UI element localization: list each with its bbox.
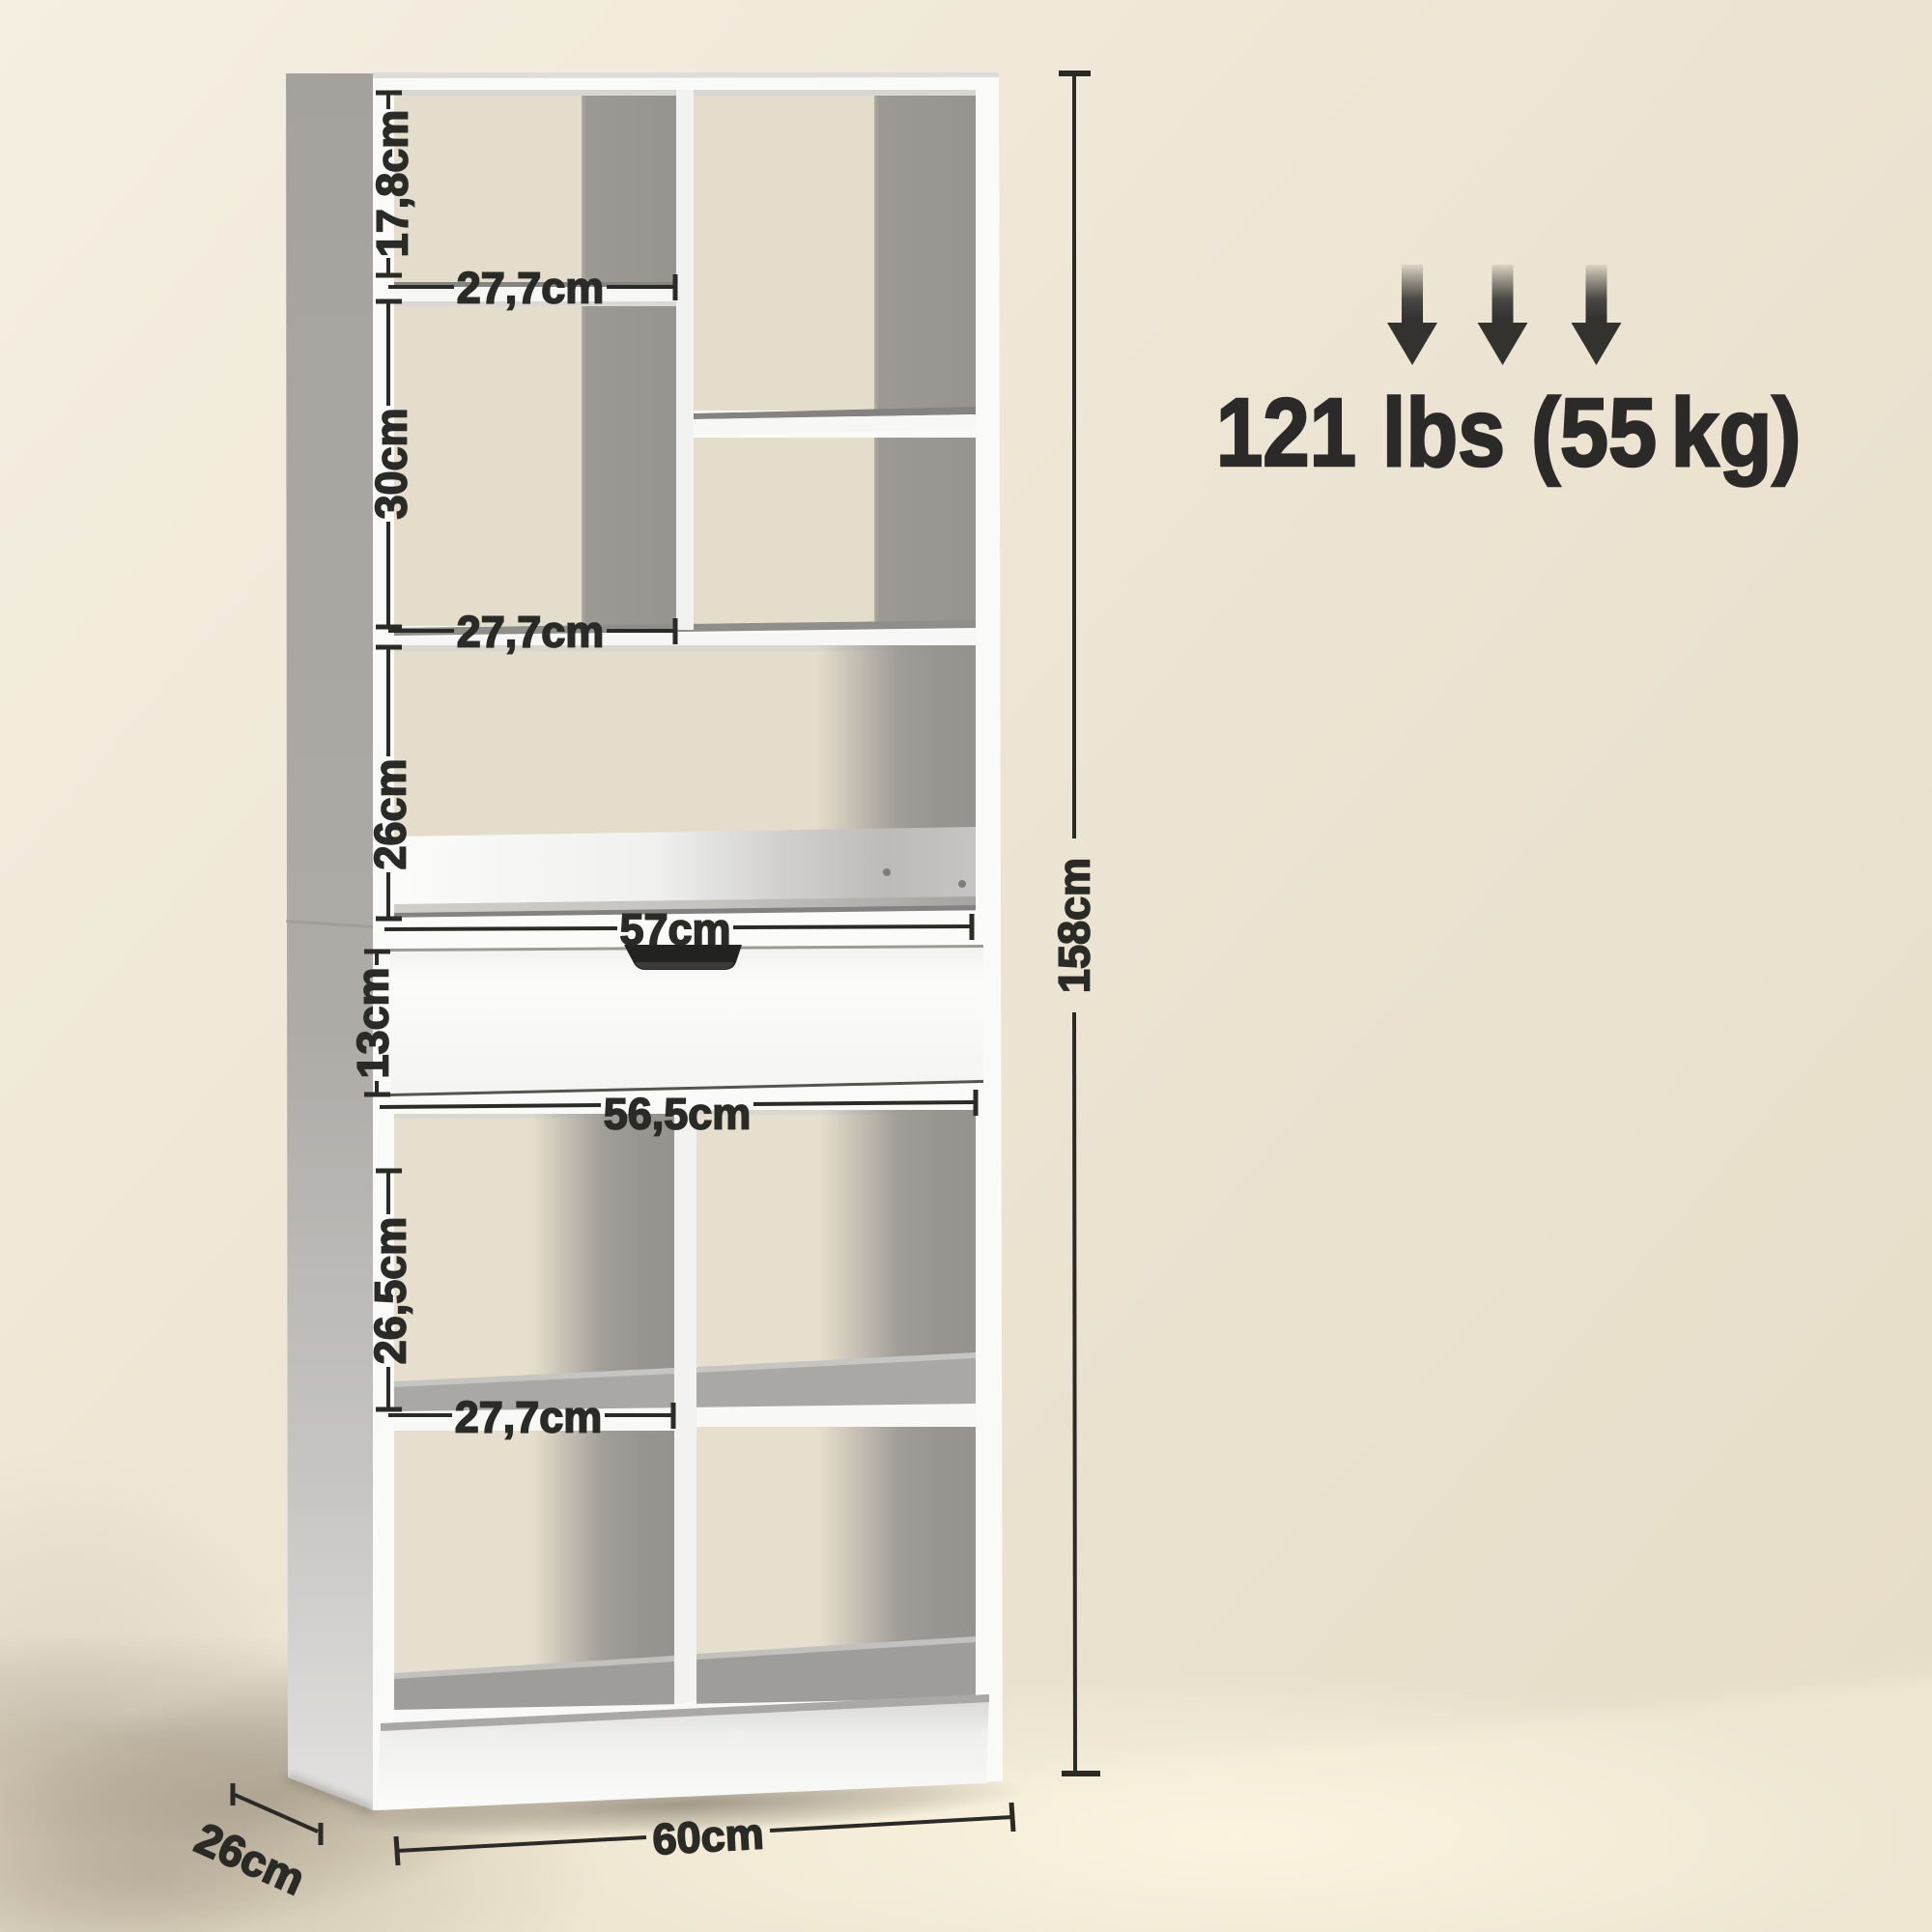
- svg-text:27,7cm: 27,7cm: [457, 608, 605, 657]
- svg-text:(55: (55: [1531, 380, 1657, 487]
- svg-text:121: 121: [1216, 378, 1356, 486]
- svg-text:lbs: lbs: [1382, 379, 1505, 486]
- svg-text:158cm: 158cm: [1050, 858, 1099, 993]
- svg-text:17,8cm: 17,8cm: [368, 110, 417, 258]
- svg-text:26,5cm: 26,5cm: [366, 1217, 415, 1365]
- svg-text:kg): kg): [1671, 380, 1802, 487]
- svg-text:27,7cm: 27,7cm: [457, 264, 605, 313]
- svg-text:26cm: 26cm: [366, 758, 415, 869]
- svg-text:27,7cm: 27,7cm: [455, 1393, 603, 1442]
- svg-text:60cm: 60cm: [651, 1808, 765, 1863]
- svg-text:30cm: 30cm: [367, 408, 416, 519]
- svg-text:56,5cm: 56,5cm: [604, 1090, 752, 1139]
- svg-text:57cm: 57cm: [619, 905, 730, 954]
- svg-text:13cm: 13cm: [349, 967, 398, 1078]
